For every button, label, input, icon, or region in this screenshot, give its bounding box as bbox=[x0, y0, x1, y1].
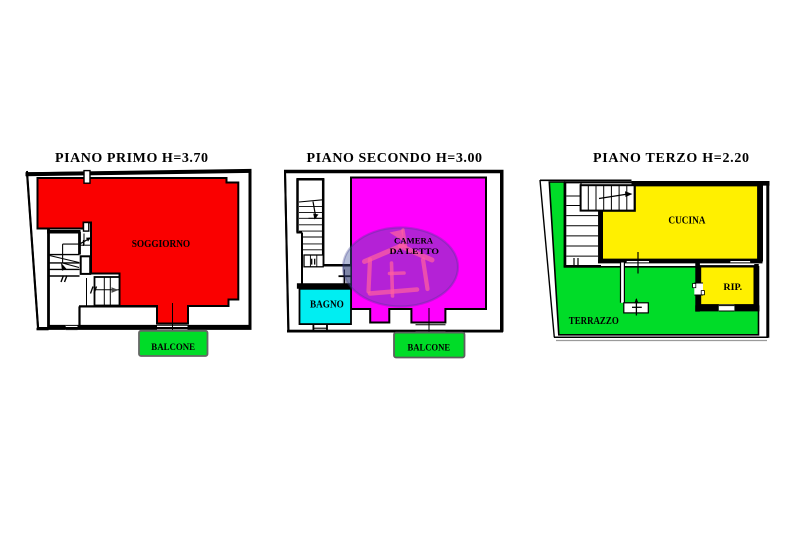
svg-text:BAGNO: BAGNO bbox=[310, 299, 344, 310]
svg-text:PIANO TERZO H=2.20: PIANO TERZO H=2.20 bbox=[593, 151, 749, 166]
svg-text:CAMERA: CAMERA bbox=[394, 236, 433, 245]
svg-text:SOGGIORNO: SOGGIORNO bbox=[132, 239, 191, 250]
svg-text:PIANO SECONDO H=3.00: PIANO SECONDO H=3.00 bbox=[307, 151, 483, 166]
svg-text:CUCINA: CUCINA bbox=[668, 214, 705, 226]
svg-text:BALCONE: BALCONE bbox=[151, 342, 195, 352]
svg-text:TERRAZZO: TERRAZZO bbox=[569, 316, 619, 327]
svg-text:PIANO PRIMO H=3.70: PIANO PRIMO H=3.70 bbox=[55, 151, 208, 166]
svg-text:DA LETTO: DA LETTO bbox=[390, 247, 440, 256]
svg-text:BALCONE: BALCONE bbox=[408, 342, 451, 352]
svg-text:RIP.: RIP. bbox=[723, 283, 742, 293]
